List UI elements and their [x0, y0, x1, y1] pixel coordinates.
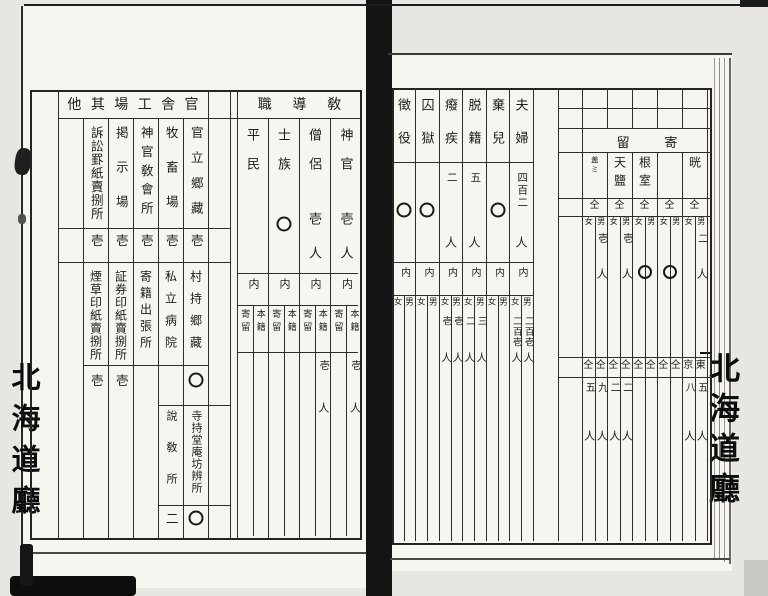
category-unit: 人: [515, 236, 527, 248]
grid-line: [707, 88, 708, 541]
female-count-unit: 人: [683, 430, 694, 441]
female-label: 女: [634, 217, 642, 225]
grid-line: [558, 88, 559, 541]
scanned-ledger-spread: 北海道廳 北海道廳 官舎工場其他官立郷藏壱村持郷藏寺持堂庵坊辨所牧畜場壱私立病院…: [0, 0, 768, 596]
row2-label: 京: [683, 361, 693, 371]
grid-line: [237, 352, 358, 353]
grid-line: [695, 216, 696, 541]
male-count-unit: 人: [595, 430, 606, 441]
female-label: 女: [464, 297, 473, 306]
category-unit: 人: [468, 236, 480, 248]
grid-line: [58, 262, 230, 263]
header-char: 寄: [664, 132, 677, 151]
male-count-unit: 人: [695, 268, 706, 279]
kiryu-label: 寄留: [271, 309, 280, 335]
clergy-name: 神官: [340, 128, 353, 186]
zero-mark: [188, 511, 203, 526]
male-label: 男: [499, 297, 508, 306]
male-count: 壱: [596, 233, 606, 244]
place-name: 盖ミ: [591, 156, 599, 175]
inner-label: 内: [469, 267, 479, 277]
row2-label: 仝: [633, 361, 643, 371]
building-count: 壱: [139, 234, 152, 248]
grid-line: [558, 128, 712, 129]
clergy-honseki-unit: 人: [349, 402, 360, 413]
grid-line: [533, 88, 534, 541]
inner-label: 内: [341, 278, 352, 289]
category-name: 癈疾: [444, 98, 457, 164]
grid-line: [498, 295, 499, 541]
ink-smudge: [18, 214, 26, 224]
male-count: 二: [621, 382, 631, 393]
page-top-edge: [24, 4, 742, 6]
male-count: 二百壱: [522, 316, 532, 348]
grid-line: [237, 273, 358, 274]
grid-line: [558, 152, 712, 153]
female-label: 女: [417, 297, 426, 306]
header-char: 其: [91, 94, 105, 114]
grid-line: [83, 365, 208, 366]
kiryu-label: 寄留: [240, 309, 249, 335]
clergy-header: 敎導職: [237, 94, 362, 114]
grid-line: [595, 216, 596, 541]
building-name: 說敎所: [165, 410, 176, 505]
male-count: 五: [696, 382, 706, 393]
zero-mark: [638, 265, 652, 279]
clergy-unit: 人: [308, 246, 321, 259]
grid-line: [607, 152, 608, 541]
grid-line: [392, 262, 533, 263]
grid-line: [208, 90, 209, 540]
grid-line: [451, 295, 452, 541]
grid-line: [682, 152, 683, 541]
grid-line: [237, 90, 238, 540]
right-page-top-edge: [388, 53, 732, 55]
building-count: 壱: [89, 374, 102, 388]
female-count-unit: 人: [463, 352, 474, 363]
grid-line: [392, 162, 533, 163]
building-count: 壱: [164, 234, 177, 248]
male-label: 男: [476, 297, 485, 306]
grid-line: [183, 118, 184, 540]
row2-label: 仝: [658, 361, 668, 371]
female-label: 女: [441, 297, 450, 306]
sojourn-header: 寄留: [582, 131, 712, 151]
female-label: 女: [659, 217, 667, 225]
grid-line: [392, 295, 533, 296]
zero-mark: [396, 203, 411, 218]
ditto-mark: 仝: [665, 201, 675, 211]
male-label: 男: [429, 297, 438, 306]
header-char: 他: [67, 94, 81, 114]
female-label: 女: [609, 217, 617, 225]
male-count-unit: 人: [595, 268, 606, 279]
grid-line: [415, 88, 416, 541]
zero-mark: [490, 203, 505, 218]
inner-label: 内: [422, 267, 432, 277]
header-char: 導: [293, 94, 307, 114]
category-name: 棄兒: [491, 98, 504, 164]
inner-label: 内: [516, 267, 526, 277]
header-char: 場: [114, 94, 128, 114]
building-name: 掲示場: [114, 126, 127, 230]
building-name: 寄籍出張所: [140, 270, 152, 353]
female-label: 女: [584, 217, 592, 225]
clergy-total: 壱: [340, 212, 353, 225]
male-label: 男: [622, 217, 630, 225]
grid-line: [268, 118, 269, 540]
ditto-mark: 仝: [590, 201, 600, 211]
grid-line: [558, 198, 712, 199]
place-name: 晄: [689, 156, 701, 174]
kiryu-label: 寄留: [334, 309, 343, 335]
grid-line: [83, 118, 84, 540]
zero-mark: [276, 217, 291, 232]
male-count-unit: 人: [475, 352, 486, 363]
clergy-name: 士族: [277, 128, 290, 186]
header-char: 工: [138, 94, 152, 114]
grid-line: [158, 405, 230, 406]
male-count: 二: [696, 233, 706, 244]
clergy-honseki-unit: 人: [317, 402, 328, 413]
female-count: 八: [683, 382, 693, 393]
building-name: 牧畜場: [164, 126, 177, 230]
grid-line: [462, 88, 463, 541]
category-name: 夫婦: [515, 98, 528, 164]
page-bottom-edge: [22, 552, 366, 554]
building-name: 神官敎會所: [139, 126, 152, 220]
male-label: 男: [523, 297, 532, 306]
row2-label: 東: [696, 361, 706, 371]
grid-line: [558, 377, 712, 378]
corner-shadow: [744, 560, 768, 596]
clergy-unit: 人: [340, 246, 353, 259]
ditto-mark: 仝: [640, 201, 650, 211]
place-name: 根室: [639, 156, 651, 192]
inner-label: 内: [399, 267, 409, 277]
honseki-label: 本籍: [350, 309, 359, 335]
grid-line: [330, 118, 331, 540]
female-label: 女: [488, 297, 497, 306]
corner-shadow: [740, 0, 768, 7]
header-char: 舎: [161, 94, 175, 114]
clergy-name: 平民: [246, 128, 259, 186]
building-name: 煙草印紙賣捌所: [90, 270, 102, 361]
category-name: 囚獄: [421, 98, 434, 164]
clergy-name: 僧侶: [308, 128, 321, 186]
grid-line: [58, 118, 362, 119]
grid-line: [58, 228, 230, 229]
category-total: 五: [469, 172, 480, 185]
female-count: 壱: [440, 316, 450, 327]
building-name: 証券印紙賣捌所: [115, 270, 127, 361]
honseki-label: 本籍: [256, 309, 265, 335]
male-count-unit: 人: [620, 430, 631, 441]
building-count: 壱: [89, 234, 102, 248]
male-label: 男: [405, 297, 414, 306]
grid-line: [133, 118, 134, 540]
grid-line: [158, 118, 159, 540]
header-char: 官: [185, 94, 199, 114]
female-count-unit: 人: [440, 352, 451, 363]
ink-blob: [20, 544, 33, 586]
inner-label: 内: [247, 278, 258, 289]
row2-label: 仝: [646, 361, 656, 371]
place-name: 天鹽: [614, 156, 626, 192]
inner-label: 内: [446, 267, 456, 277]
building-count: 壱: [114, 374, 127, 388]
row2-label: 仝: [583, 361, 593, 371]
female-count: 二百壱: [510, 316, 520, 348]
grid-line: [439, 88, 440, 541]
row2-label: 仝: [621, 361, 631, 371]
male-count-unit: 人: [620, 268, 631, 279]
inner-label: 内: [493, 267, 503, 277]
female-count-unit: 人: [583, 430, 594, 441]
grid-line: [299, 118, 300, 540]
female-label: 女: [511, 297, 520, 306]
header-char: 敎: [327, 94, 341, 114]
building-name: 訴訟罫紙賣捌所: [89, 126, 102, 221]
honseki-label: 本籍: [318, 309, 327, 335]
grid-line: [474, 295, 475, 541]
buildings-header: 官舎工場其他: [58, 94, 208, 114]
male-count: 壱: [621, 233, 631, 244]
zero-mark: [420, 203, 435, 218]
grid-line: [58, 90, 59, 540]
kiryu-label: 寄留: [302, 309, 311, 335]
clergy-total: 壱: [308, 212, 321, 225]
category-total: 四百二: [516, 172, 527, 210]
grid-line: [632, 152, 633, 541]
grid-line: [427, 295, 428, 541]
inner-label: 内: [278, 278, 289, 289]
grid-line: [230, 90, 231, 540]
grid-line: [558, 357, 712, 358]
male-count-unit: 人: [522, 352, 533, 363]
male-count: 壱: [452, 316, 462, 327]
clergy-honseki: 壱: [349, 360, 359, 371]
building-name: 村持郷藏: [190, 270, 202, 358]
category-name: 脱籍: [468, 98, 481, 164]
female-count: 二: [463, 316, 473, 327]
female-label: 女: [684, 217, 692, 225]
ditto-mark: 仝: [690, 201, 700, 211]
grid-line: [620, 216, 621, 541]
row2-label: 仝: [671, 361, 681, 371]
inner-label: 内: [309, 278, 320, 289]
category-name: 徴役: [397, 98, 410, 164]
honseki-label: 本籍: [287, 309, 296, 335]
building-count: 壱: [189, 234, 202, 248]
row2-label: 仝: [596, 361, 606, 371]
grid-line: [486, 88, 487, 541]
male-count-unit: 人: [451, 352, 462, 363]
building-name: 寺持堂庵坊辨所: [190, 410, 201, 494]
female-count: 二: [608, 382, 618, 393]
zero-mark: [663, 265, 677, 279]
grid-line: [582, 88, 583, 541]
female-count-unit: 人: [510, 352, 521, 363]
ditto-mark: 仝: [615, 201, 625, 211]
grid-line: [237, 305, 358, 306]
building-count: 壱: [114, 234, 127, 248]
header-char: 留: [617, 132, 630, 151]
male-label: 男: [672, 217, 680, 225]
grid-line: [284, 305, 285, 536]
grid-line: [253, 305, 254, 536]
male-label: 男: [597, 217, 605, 225]
grid-line: [315, 305, 316, 536]
male-label: 男: [697, 217, 705, 225]
female-count-unit: 人: [608, 430, 619, 441]
grid-line: [558, 108, 712, 109]
building-name: 私立病院: [165, 270, 177, 358]
grid-line: [404, 295, 405, 541]
header-char: 職: [258, 94, 272, 114]
grid-line: [657, 152, 658, 541]
grid-line: [346, 305, 347, 536]
male-label: 男: [647, 217, 655, 225]
book-spine: [366, 0, 392, 596]
page-bottom-edge: [390, 558, 730, 560]
male-count: 三: [475, 316, 485, 327]
female-count: 五: [583, 382, 593, 393]
male-count: 九: [596, 382, 606, 393]
building-count: 二: [164, 512, 177, 526]
clergy-honseki: 壱: [317, 360, 327, 371]
female-label: 女: [394, 297, 403, 306]
zero-mark: [188, 373, 203, 388]
row2-label: 仝: [608, 361, 618, 371]
building-name: 官立郷藏: [189, 126, 202, 227]
category-unit: 人: [445, 236, 457, 248]
category-total: 二: [445, 172, 456, 185]
grid-line: [158, 505, 230, 506]
male-count-unit: 人: [695, 430, 706, 441]
male-label: 男: [452, 297, 461, 306]
grid-line: [509, 88, 510, 541]
grid-line: [108, 118, 109, 540]
